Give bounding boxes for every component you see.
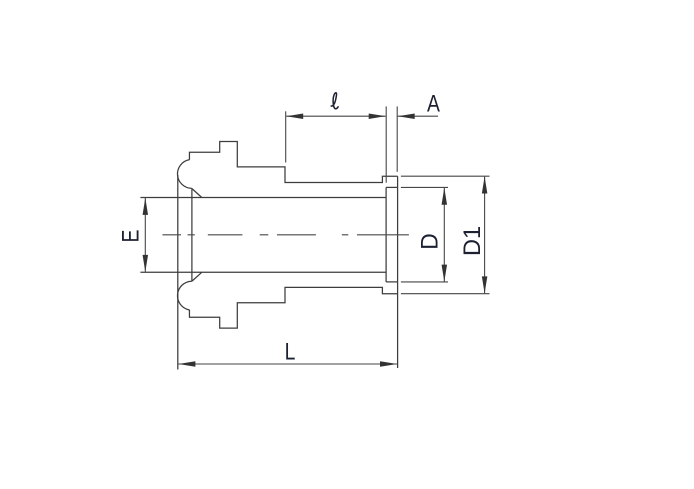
- svg-text:E: E: [117, 230, 144, 243]
- svg-text:L: L: [285, 338, 296, 365]
- svg-text:D: D: [416, 233, 442, 250]
- svg-text:D1: D1: [460, 226, 486, 256]
- svg-text:A: A: [427, 90, 440, 117]
